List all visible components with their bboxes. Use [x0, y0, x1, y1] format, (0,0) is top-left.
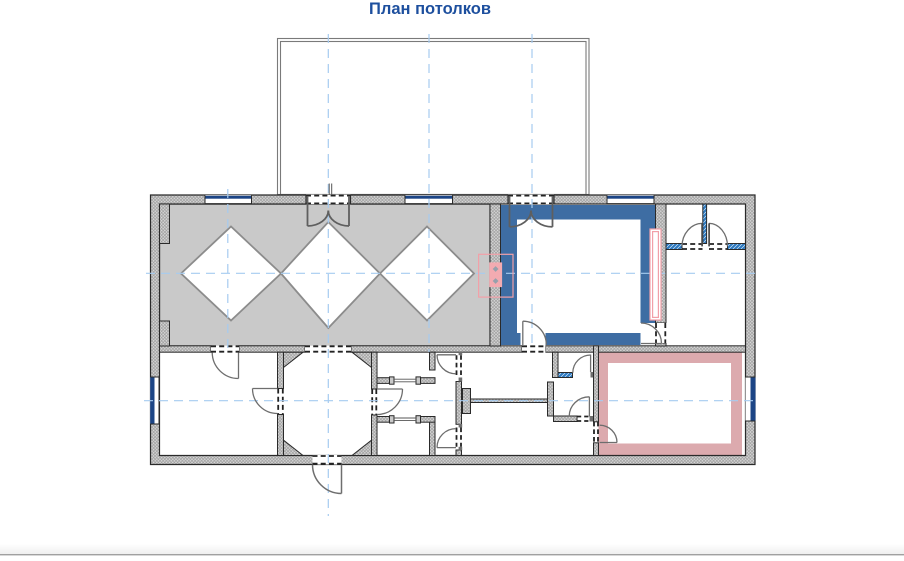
svg-text:План потолков: План потолков: [369, 0, 491, 18]
